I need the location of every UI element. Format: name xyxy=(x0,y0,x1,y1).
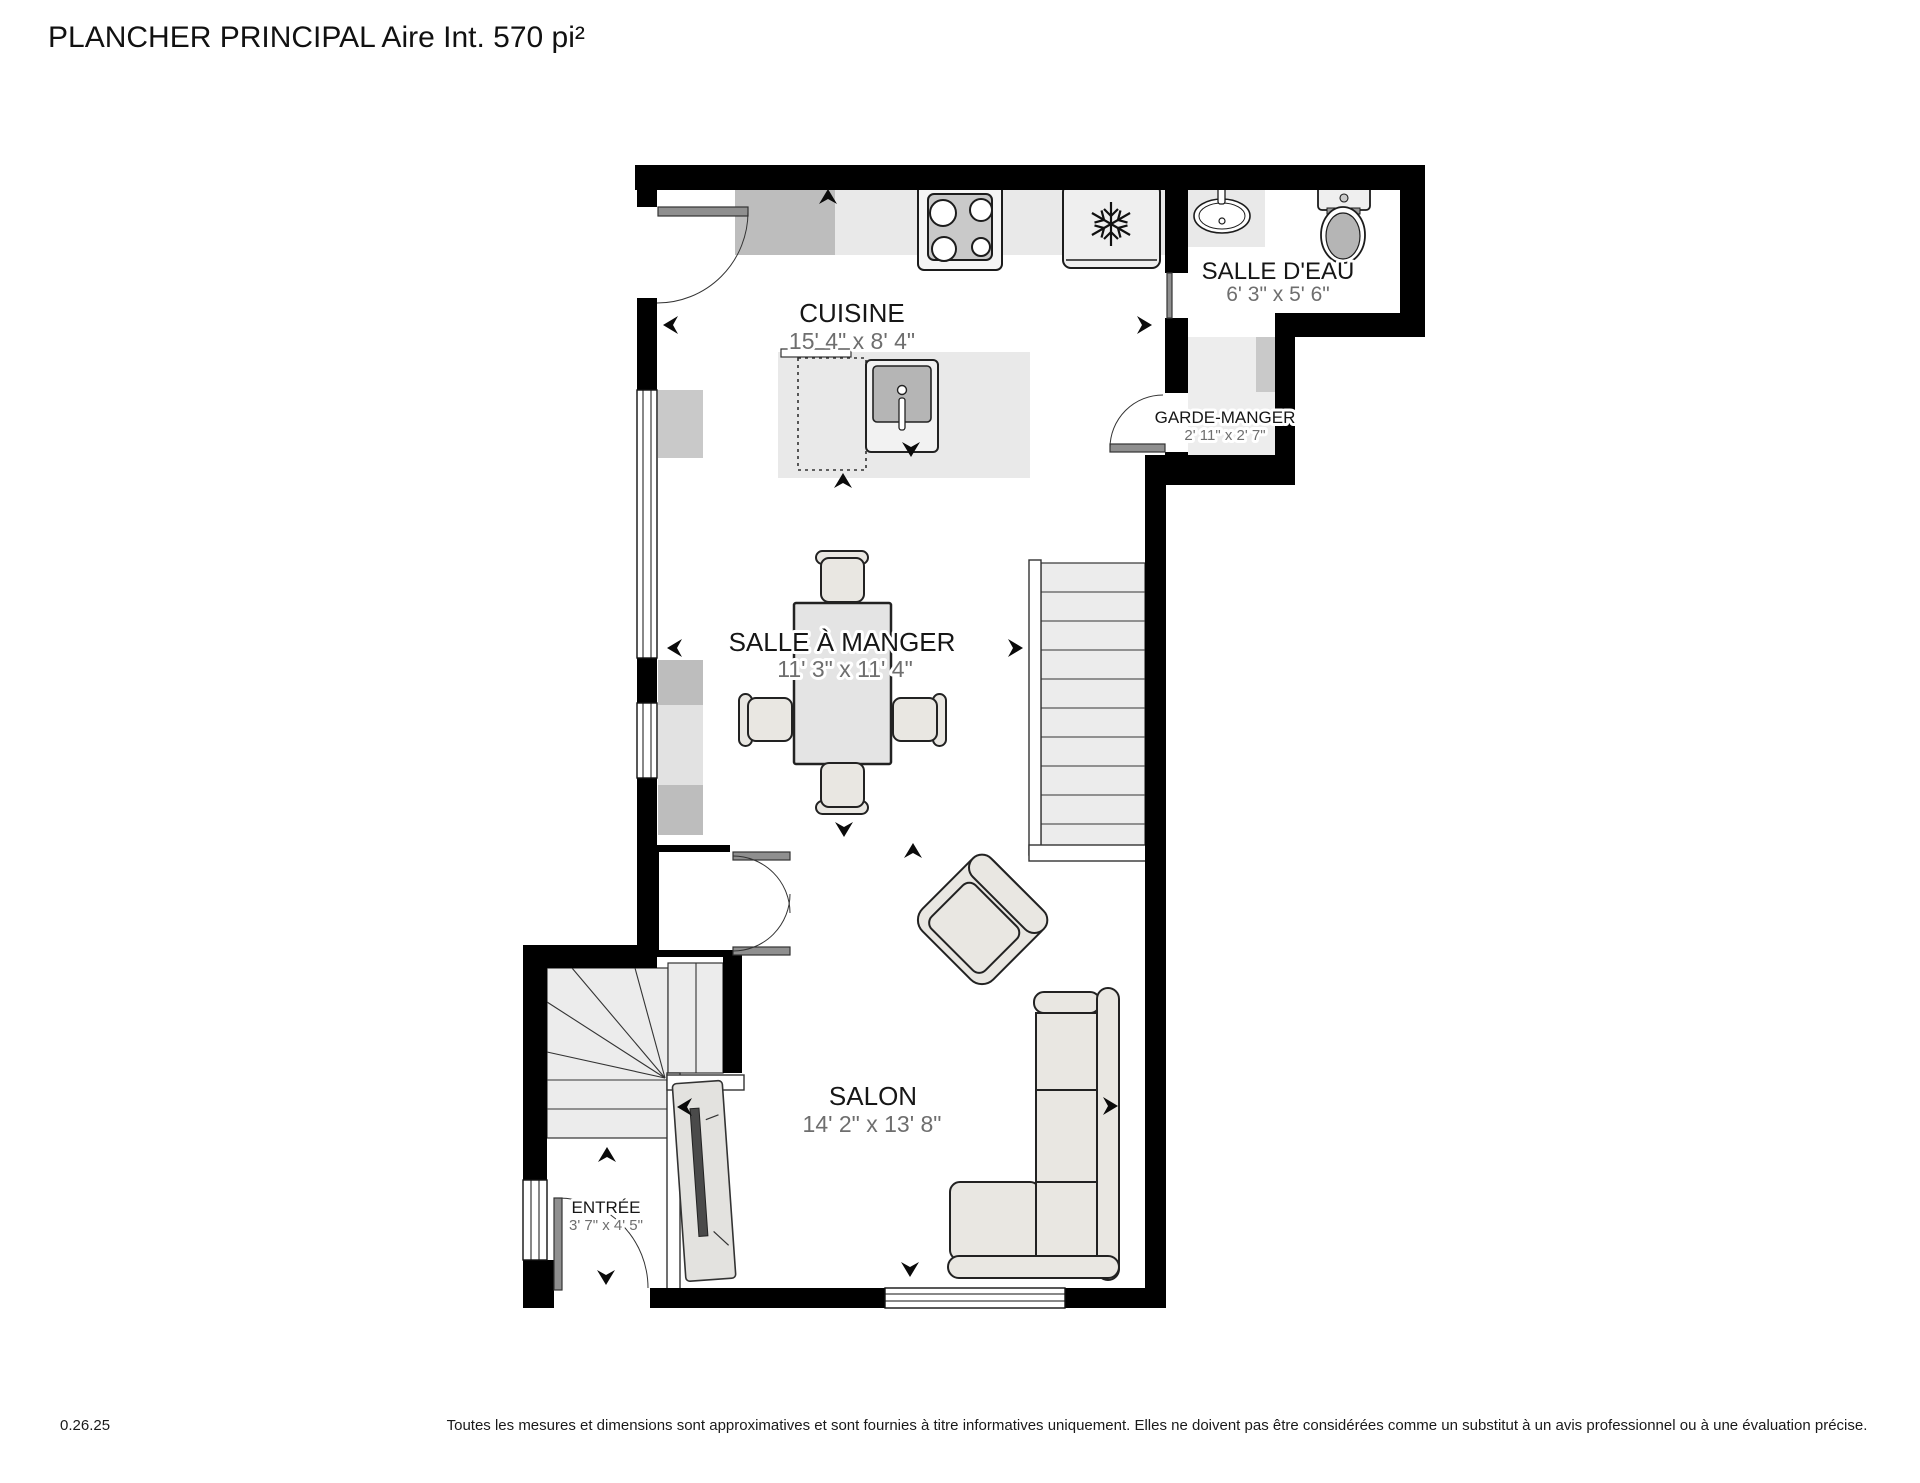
dining-chair xyxy=(816,551,868,602)
direction-arrow-down xyxy=(901,1262,919,1277)
direction-arrow-up xyxy=(598,1147,616,1162)
wall-pantry-left-stub xyxy=(1165,452,1188,485)
toilet xyxy=(1318,186,1370,263)
footer-disclaimer: Toutes les mesures et dimensions sont ap… xyxy=(447,1417,1868,1434)
main-staircase xyxy=(1029,560,1147,861)
room-dims-entree: 3' 7" x 4' 5" xyxy=(569,1217,643,1234)
stove xyxy=(918,184,1002,270)
refrigerator xyxy=(1063,184,1160,268)
wall-cabinet-3 xyxy=(658,705,703,785)
dining-table-set xyxy=(739,551,946,814)
dining-chair xyxy=(893,694,946,746)
tv-unit xyxy=(672,1080,736,1281)
sink-faucet-icon xyxy=(898,386,907,395)
wall-bottom-2 xyxy=(1065,1288,1166,1308)
direction-arrow-down xyxy=(835,822,853,837)
island-sink xyxy=(866,360,938,452)
wall-left-2 xyxy=(637,298,657,390)
wall-bathroom-left-upper xyxy=(1165,165,1188,273)
sofa-chaise xyxy=(950,1182,1040,1260)
room-dims-salon: 14' 2" x 13' 8" xyxy=(803,1111,942,1137)
wall-step-out xyxy=(523,945,657,968)
room-dims-salle-deau: 6' 3" x 5' 6" xyxy=(1226,283,1329,306)
direction-arrow-left xyxy=(663,316,678,334)
stair-stringer xyxy=(1029,560,1041,855)
wall-cabinet-1 xyxy=(658,390,703,458)
wall-bathroom-left-lower xyxy=(1165,318,1188,393)
burner-icon xyxy=(930,200,956,226)
closet-wall-top xyxy=(652,845,730,852)
closet-double-doors xyxy=(733,852,790,955)
direction-arrow-right xyxy=(1137,316,1152,334)
room-dims-garde-manger: 2' 11" x 2' 7" xyxy=(1184,427,1265,444)
room-label-garde-manger: GARDE-MANGER xyxy=(1155,408,1296,427)
room-label-salon: SALON xyxy=(829,1081,917,1111)
room-label-entree: ENTRÉE xyxy=(572,1198,641,1217)
sofa-armrest xyxy=(948,1256,1119,1278)
dining-chair xyxy=(739,694,792,746)
sofa-armrest xyxy=(1034,992,1100,1013)
wall-cabinet-4 xyxy=(658,785,703,835)
floor-plan-page: PLANCHER PRINCIPAL Aire Int. 570 pi² xyxy=(0,0,1920,1483)
closet-wall-bottom xyxy=(652,950,730,957)
kitchen-corner-cabinet xyxy=(735,190,835,255)
kitchen-side-door xyxy=(657,207,748,303)
burner-icon xyxy=(970,199,992,221)
burner-icon xyxy=(972,238,990,256)
wall-left-3 xyxy=(637,658,657,703)
window-left-mid xyxy=(637,703,657,778)
footer-version: 0.26.25 xyxy=(60,1417,110,1434)
burner-icon xyxy=(932,237,956,261)
wall-left-1 xyxy=(637,165,657,207)
garde-manger-shelf xyxy=(1256,337,1275,392)
floor-plan-canvas: PLANCHER PRINCIPAL Aire Int. 570 pi² xyxy=(0,0,1920,1483)
wall-top xyxy=(635,165,1425,190)
wall-bottom-1 xyxy=(650,1288,885,1308)
sofa-armrest xyxy=(1097,988,1119,1280)
room-label-salle-deau: SALLE D'EAU xyxy=(1202,258,1355,285)
armchair xyxy=(911,849,1052,990)
room-label-cuisine: CUISINE xyxy=(799,298,904,328)
direction-arrow-right xyxy=(1008,639,1023,657)
bathroom-door xyxy=(1167,273,1172,318)
wall-bathroom-bottom xyxy=(1275,313,1425,337)
wall-left-lower-1 xyxy=(523,968,547,1180)
wall-right-main xyxy=(1145,455,1166,1308)
footer: 0.26.25 Toutes les mesures et dimensions… xyxy=(60,1417,1867,1434)
wall-cabinet-2 xyxy=(658,660,703,705)
wall-stair-divider xyxy=(723,950,742,1073)
closet-wall-left xyxy=(652,845,659,957)
plan-title: PLANCHER PRINCIPAL Aire Int. 570 pi² xyxy=(48,21,585,54)
sectional-sofa xyxy=(948,988,1119,1280)
window-salon-bottom xyxy=(885,1288,1065,1308)
stair-bottom-edge xyxy=(1029,845,1147,861)
room-dims-cuisine: 15' 4" x 8' 4" xyxy=(789,328,915,354)
direction-arrow-down xyxy=(597,1270,615,1285)
direction-arrow-left xyxy=(667,639,682,657)
wall-left-lower-corner xyxy=(523,1260,554,1308)
bathroom-vanity xyxy=(1176,182,1265,247)
window-left-long xyxy=(637,390,657,658)
sofa-seats xyxy=(1036,1013,1100,1260)
room-label-salle-a-manger: SALLE À MANGER xyxy=(729,627,956,657)
windows xyxy=(523,390,1065,1308)
wall-right-bathroom xyxy=(1400,165,1425,337)
direction-arrow-up xyxy=(904,843,922,858)
window-entry-left xyxy=(523,1180,547,1260)
dining-chair xyxy=(816,763,868,814)
room-dims-salle-a-manger: 11' 3" x 11' 4" xyxy=(777,656,913,682)
